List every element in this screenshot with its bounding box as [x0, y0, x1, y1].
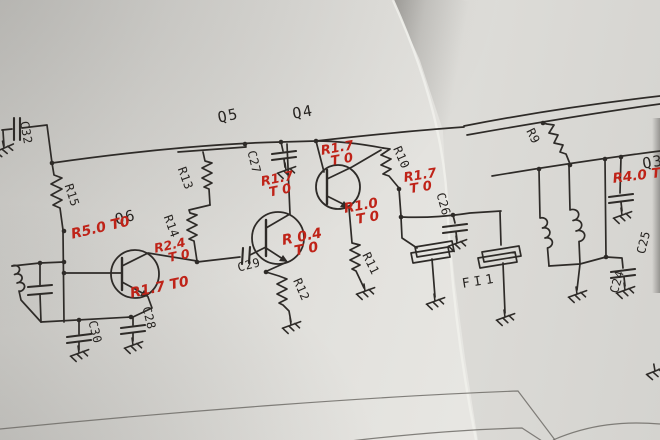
label-fi1: FI1 [461, 271, 498, 291]
annotation-line: T 0 [293, 240, 325, 259]
annotation-q4-collector: R1.7 T 0 [403, 168, 440, 198]
label-c26: C26 [434, 191, 454, 217]
label-r9: R9 [523, 126, 542, 146]
annotation-q4-base: R1.7 T 0 [320, 140, 357, 170]
schematic-photo: C32 R15 R13 R14 Q6 Q5 Q4 C27 C29 R12 R10… [0, 0, 660, 440]
annotation-q4-emitter: R1.0 T 0 [343, 197, 381, 228]
label-q4: Q4 [291, 101, 315, 122]
label-r10: R10 [390, 144, 412, 171]
annotation-q5-base: R1.7 T 0 [260, 171, 297, 202]
annotation-line: T 0 [167, 248, 191, 264]
label-r13: R13 [175, 165, 196, 192]
annotation-q3-input: R4.0 T [612, 167, 660, 186]
annotation-q6-bias: R2.4 T 0 [153, 236, 191, 266]
label-c30: C30 [85, 319, 104, 345]
annotation-q6-input: R5.0 T0 [70, 216, 131, 242]
label-c32: C32 [17, 120, 35, 145]
label-q5: Q5 [216, 105, 240, 127]
annotation-line: T 0 [330, 152, 357, 169]
label-c25: C25 [634, 230, 653, 256]
label-r15: R15 [62, 182, 82, 208]
label-c27: C27 [244, 149, 263, 175]
annotation-line: T 0 [268, 183, 297, 200]
annotation-line: T 0 [355, 210, 381, 227]
annotation-q5-emitter: R 0.4 T 0 [281, 227, 326, 261]
label-r12: R12 [290, 276, 312, 303]
label-c29: C29 [236, 255, 262, 274]
label-c24: C24 [607, 269, 627, 295]
labels-layer: C32 R15 R13 R14 Q6 Q5 Q4 C27 C29 R12 R10… [0, 0, 660, 440]
label-r11: R11 [359, 250, 382, 277]
annotation-q6-emitter: R1.7 T0 [129, 276, 190, 301]
label-c28: C28 [139, 305, 158, 331]
